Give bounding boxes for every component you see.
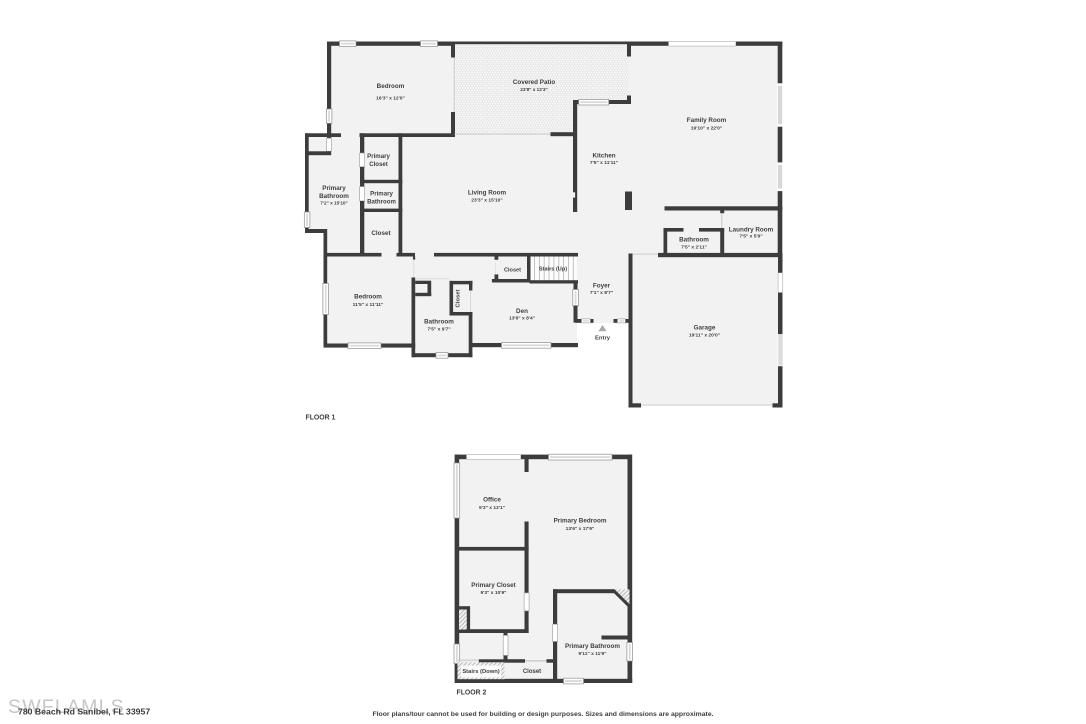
- svg-text:Garage: Garage: [694, 325, 716, 332]
- svg-text:7'1" x 8'7": 7'1" x 8'7": [590, 290, 613, 296]
- svg-text:Bathroom: Bathroom: [367, 198, 396, 205]
- svg-text:9'3" x 10'9": 9'3" x 10'9": [480, 590, 506, 596]
- svg-text:11'5" x 11'11": 11'5" x 11'11": [353, 302, 384, 308]
- svg-text:Closet: Closet: [371, 230, 391, 237]
- svg-text:Floor plans/tour cannot be use: Floor plans/tour cannot be used for buil…: [372, 711, 713, 718]
- svg-text:Primary Closet: Primary Closet: [471, 582, 516, 589]
- svg-text:Laundry Room: Laundry Room: [729, 226, 774, 233]
- svg-text:Primary: Primary: [367, 153, 390, 160]
- svg-text:780 Beach Rd Sanibel, FL 33957: 780 Beach Rd Sanibel, FL 33957: [18, 707, 150, 717]
- svg-text:Foyer: Foyer: [593, 282, 611, 289]
- svg-text:Stairs (Up): Stairs (Up): [539, 266, 567, 272]
- svg-text:23'8" x 12'3": 23'8" x 12'3": [520, 87, 548, 92]
- svg-text:Primary Bedroom: Primary Bedroom: [554, 518, 607, 525]
- svg-text:13'6" x 8'4": 13'6" x 8'4": [509, 315, 535, 321]
- svg-text:Family Room: Family Room: [687, 117, 727, 124]
- svg-text:Entry: Entry: [595, 336, 611, 342]
- svg-text:Bathroom: Bathroom: [679, 237, 709, 244]
- svg-text:Primary Bathroom: Primary Bathroom: [565, 643, 620, 650]
- svg-text:Living Room: Living Room: [468, 189, 507, 196]
- svg-text:9'11" x 11'9": 9'11" x 11'9": [578, 651, 606, 657]
- svg-text:Closet: Closet: [369, 161, 388, 168]
- svg-text:13'6" x 17'9": 13'6" x 17'9": [566, 526, 595, 532]
- svg-text:Bathroom: Bathroom: [424, 319, 454, 326]
- svg-text:Stairs (Down): Stairs (Down): [462, 669, 499, 675]
- svg-text:Closet: Closet: [523, 669, 541, 675]
- svg-text:16'3" x 12'0": 16'3" x 12'0": [376, 96, 405, 102]
- svg-text:Kitchen: Kitchen: [592, 152, 615, 159]
- svg-text:19'11" x 20'0": 19'11" x 20'0": [689, 332, 720, 338]
- svg-text:Bedroom: Bedroom: [354, 294, 382, 301]
- svg-text:Closet: Closet: [504, 267, 521, 273]
- svg-text:Covered Patio: Covered Patio: [513, 79, 555, 86]
- svg-text:Office: Office: [483, 497, 501, 504]
- svg-text:Bathroom: Bathroom: [319, 193, 349, 200]
- svg-text:19'10" x 22'0": 19'10" x 22'0": [691, 125, 722, 131]
- svg-text:FLOOR 2: FLOOR 2: [457, 690, 487, 697]
- svg-text:Primary: Primary: [322, 185, 346, 192]
- svg-text:7'2" x 15'10": 7'2" x 15'10": [320, 201, 348, 206]
- svg-text:Bedroom: Bedroom: [377, 83, 405, 90]
- svg-text:7'5" x 9'7": 7'5" x 9'7": [427, 326, 450, 332]
- svg-text:7'5" x 5'9": 7'5" x 5'9": [739, 234, 762, 240]
- svg-text:9'3" x 12'1": 9'3" x 12'1": [479, 505, 505, 511]
- svg-text:Den: Den: [516, 308, 528, 315]
- svg-text:23'3" x 15'10": 23'3" x 15'10": [471, 197, 502, 203]
- svg-text:7'5" x 11'11": 7'5" x 11'11": [590, 160, 618, 166]
- svg-text:7'5" x 2'11": 7'5" x 2'11": [681, 244, 707, 250]
- svg-text:Closet: Closet: [456, 289, 462, 307]
- svg-text:FLOOR 1: FLOOR 1: [306, 414, 336, 421]
- svg-text:Primary: Primary: [370, 190, 393, 197]
